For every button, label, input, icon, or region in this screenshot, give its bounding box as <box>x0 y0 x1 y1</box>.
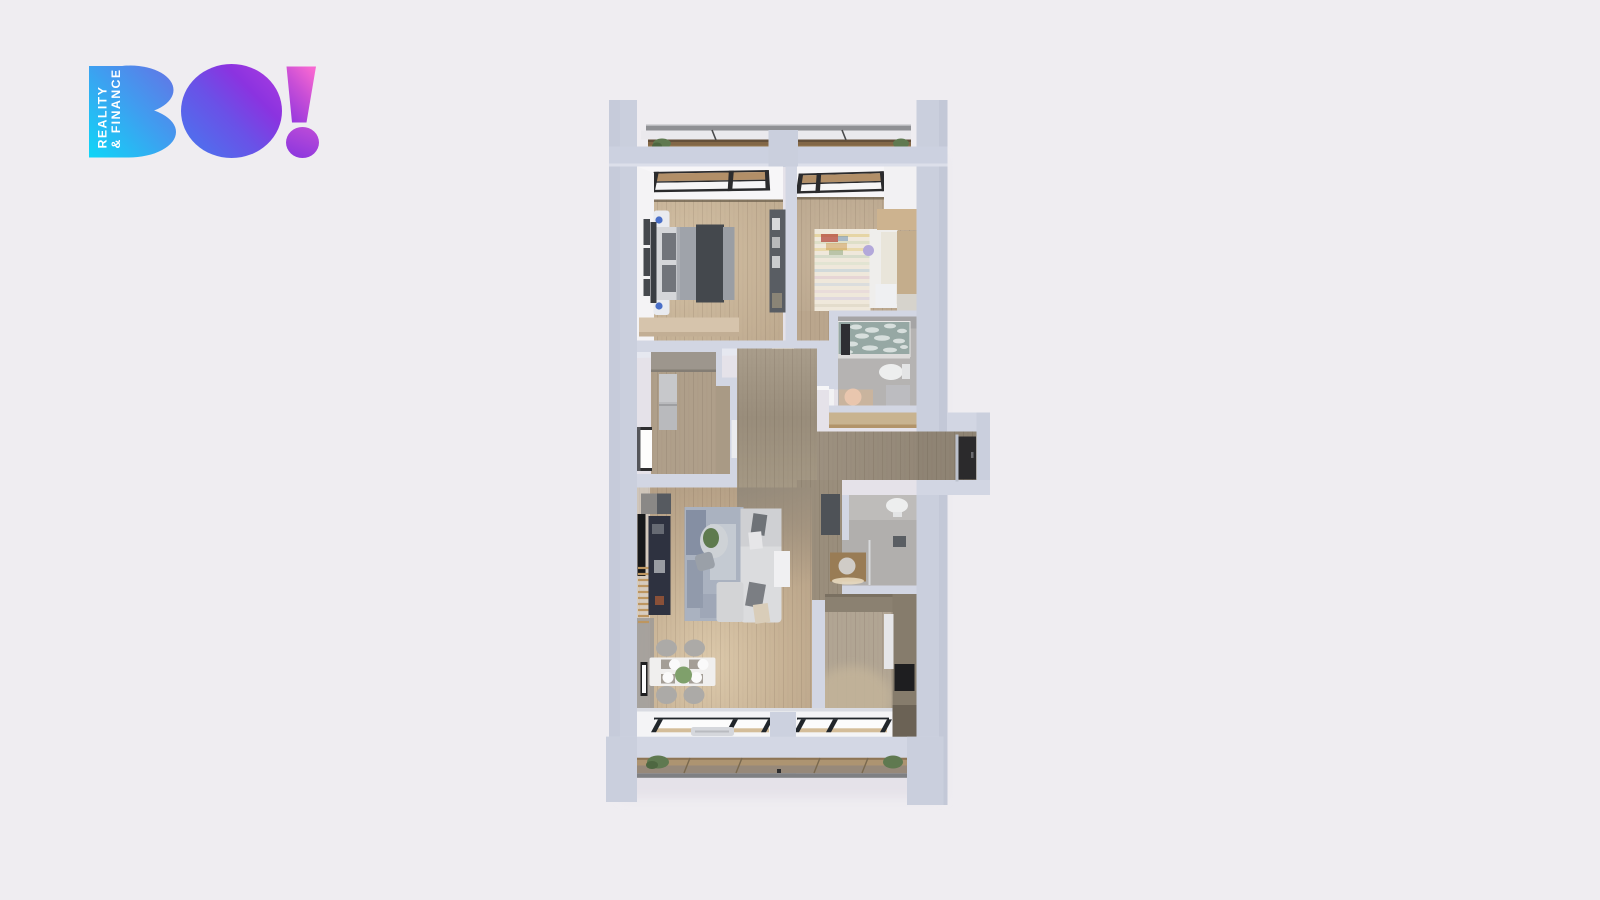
svg-text:REALITY: REALITY <box>96 86 110 149</box>
svg-text:& FINANCE: & FINANCE <box>109 68 123 148</box>
